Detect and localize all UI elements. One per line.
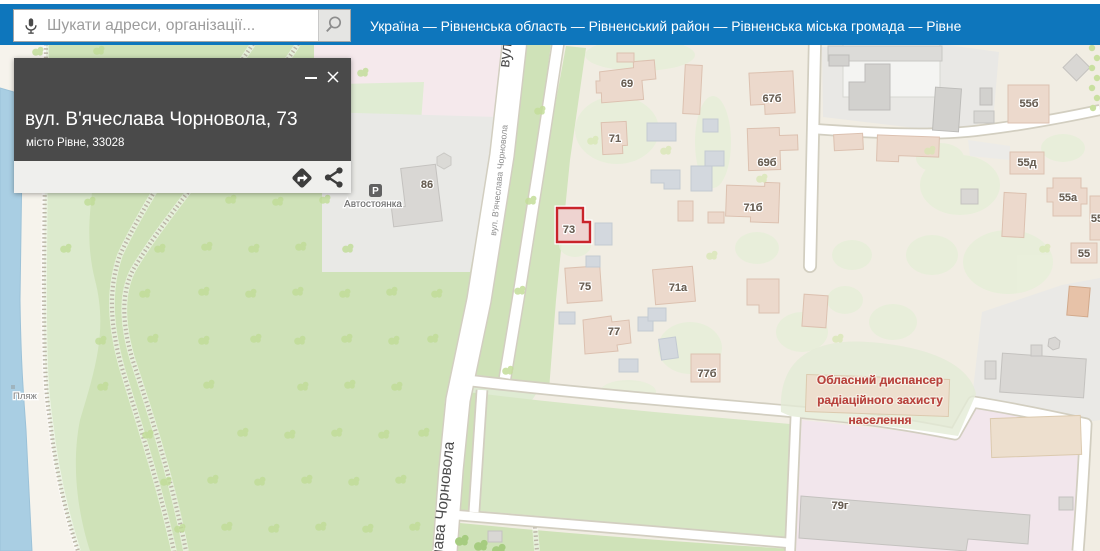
svg-text:Пляж: Пляж xyxy=(13,391,38,402)
svg-text:55: 55 xyxy=(1078,248,1090,260)
svg-text:73: 73 xyxy=(563,224,575,236)
svg-text:69б: 69б xyxy=(757,157,776,169)
svg-text:69: 69 xyxy=(621,78,633,90)
svg-text:55а: 55а xyxy=(1059,192,1078,204)
svg-text:75: 75 xyxy=(579,281,591,293)
svg-text:71: 71 xyxy=(609,133,621,145)
svg-text:Обласний диспансер: Обласний диспансер xyxy=(817,373,943,387)
svg-text:67б: 67б xyxy=(762,93,781,105)
svg-text:77б: 77б xyxy=(697,368,716,380)
svg-text:радіаційного захисту: радіаційного захисту xyxy=(817,393,943,407)
svg-text:55: 55 xyxy=(1091,213,1100,225)
svg-text:86: 86 xyxy=(421,179,433,191)
svg-text:населення: населення xyxy=(849,413,912,427)
svg-text:71а: 71а xyxy=(669,282,688,294)
svg-text:Автостоянка: Автостоянка xyxy=(344,199,402,210)
svg-text:P: P xyxy=(372,186,379,197)
svg-text:55б: 55б xyxy=(1019,98,1038,110)
svg-text:79г: 79г xyxy=(832,500,849,512)
svg-text:55д: 55д xyxy=(1017,157,1036,169)
svg-text:71б: 71б xyxy=(743,202,762,214)
svg-text:77: 77 xyxy=(608,326,620,338)
